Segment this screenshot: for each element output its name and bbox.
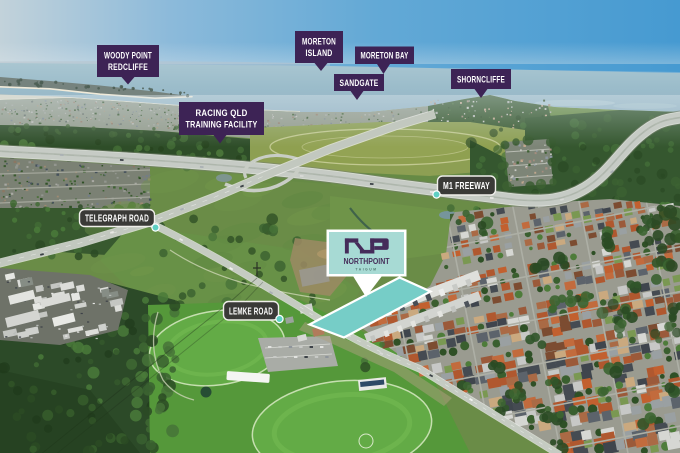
svg-text:LEMKE ROAD: LEMKE ROAD [229,306,273,317]
svg-text:MORETON: MORETON [302,37,336,48]
svg-text:TAIGUM: TAIGUM [356,268,378,272]
svg-text:REDCLIFFE: REDCLIFFE [108,62,148,73]
svg-text:M1 FREEWAY: M1 FREEWAY [443,181,490,192]
svg-text:TELEGRAPH ROAD: TELEGRAPH ROAD [85,214,149,225]
svg-text:TRAINING FACILITY: TRAINING FACILITY [186,120,258,131]
svg-text:SHORNCLIFFE: SHORNCLIFFE [457,74,505,85]
svg-text:ISLAND: ISLAND [306,48,333,59]
svg-text:SANDGATE: SANDGATE [340,78,379,89]
svg-text:WOODY POINT: WOODY POINT [104,51,152,62]
svg-text:MORETON BAY: MORETON BAY [361,51,409,62]
svg-text:NORTHPOINT: NORTHPOINT [344,256,391,266]
svg-text:RACING QLD: RACING QLD [196,108,248,119]
